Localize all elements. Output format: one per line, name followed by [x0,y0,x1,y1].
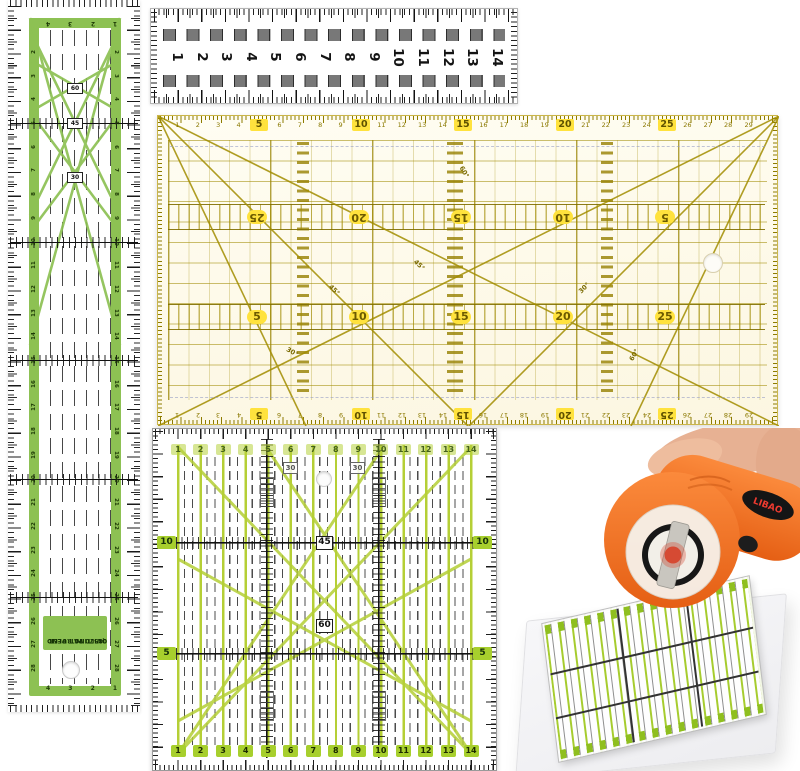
strip-length-number: 22 [30,520,38,532]
strip-width-number-top: 3 [63,19,77,27]
bigruler-bottom-number: 24 [639,410,655,419]
bigruler-bottom-number: 19 [537,410,553,419]
bigruler-top-number: 23 [618,121,634,130]
bigruler-top-number: 12 [394,121,410,130]
square-quilting-ruler: 30 30 45 60 10 5 10 5 112233445566778899… [152,428,497,771]
topruler-number: 2 [190,48,214,66]
bigruler-upper-band-number: 20 [349,210,369,224]
topruler-number: 5 [263,48,287,66]
topruler-number: 9 [362,48,386,66]
bigruler-bottom-number: 1 [169,410,185,419]
strip-length-number: 12 [30,283,38,295]
strip-length-number: 12 [112,283,120,295]
bigruler-top-number: 26 [679,121,695,130]
strip-length-number: 16 [112,378,120,390]
bigruler-bottom-number: 14 [435,410,451,419]
bigruler-bottom-number: 13 [414,410,430,419]
topruler-number: 8 [337,48,361,66]
square-top-number: 5 [261,444,276,455]
strip-length-number: 20 [112,473,120,485]
angle-60-marker: 60 [67,83,83,94]
bigruler-bottom-number: 29 [741,410,757,419]
strip-length-number: 6 [30,141,38,153]
bigruler-top-number: 18 [516,121,532,130]
strip-width-number-bottom: 1 [108,685,122,693]
strip-length-number: 11 [30,259,38,271]
strip-length-number: 3 [30,70,38,82]
strip-width-number-bottom: 2 [86,685,100,693]
bigruler-top-number: 6 [271,121,287,130]
strip-length-number: 23 [112,544,120,556]
square-top-number: 13 [441,444,456,455]
large-quilting-grid-ruler: 45° 30° 30° 60° 60° 45° 1122334455667788… [157,115,778,425]
bigruler-lower-band-number: 20 [553,310,573,324]
rotary-cutter-with-hand: LIBAO [540,428,800,633]
angle-30-marker: 30 [67,172,83,183]
strip-length-number: 15 [112,354,120,366]
bigruler-upper-band-number: 5 [655,210,675,224]
bigruler-top-number: 20 [556,119,574,131]
bigruler-hanging-hole [703,253,723,273]
bigruler-bottom-number: 23 [618,410,634,419]
strip-width-number-top: 1 [108,19,122,27]
bigruler-top-number: 15 [454,119,472,131]
strip-length-number: 2 [112,46,120,58]
strip-ruler-label-line2: 08570 PAT. PEND [47,635,107,645]
square-hanging-hole [316,471,332,487]
bigruler-top-number: 11 [373,121,389,130]
topruler-number: 3 [214,48,238,66]
square-top-number: 11 [396,444,411,455]
strip-length-number: 14 [112,330,120,342]
square-top-number: 6 [283,444,298,455]
strip-width-number-top: 2 [86,19,100,27]
strip-length-number: 8 [30,188,38,200]
strip-width-number-bottom: 3 [63,685,77,693]
topruler-number: 14 [485,48,509,66]
bigruler-bottom-number: 11 [373,410,389,419]
square-top-number: 9 [351,444,366,455]
angle-45-marker: 45 [67,118,83,129]
bigruler-upper-band-number: 10 [553,210,573,224]
square-angle-60-label: 60 [318,620,331,630]
bigruler-top-number: 10 [352,119,370,131]
bigruler-bottom-number: 18 [516,410,532,419]
strip-length-number: 25 [30,591,38,603]
bigruler-top-number: 25 [658,119,676,131]
strip-length-number: 19 [30,449,38,461]
strip-length-number: 28 [112,662,120,674]
bigruler-top-number: 21 [577,121,593,130]
strip-length-number: 18 [30,425,38,437]
bigruler-top-number: 28 [720,121,736,130]
bigruler-top-number: 27 [700,121,716,130]
bigruler-numbers: 1122334455667788991010111112121313141415… [158,116,777,424]
strip-length-number: 21 [30,496,38,508]
bigruler-bottom-number: 12 [394,410,410,419]
square-bottom-number: 11 [396,745,411,757]
strip-length-number: 23 [30,544,38,556]
bigruler-top-number: 24 [639,121,655,130]
square-bottom-number: 8 [328,745,343,757]
strip-length-number: 15 [30,354,38,366]
strip-width-number-bottom: 4 [41,685,55,693]
bigruler-bottom-number: 28 [720,410,736,419]
square-top-number: 2 [193,444,208,455]
bigruler-top-number: 22 [598,121,614,130]
square-top-number: 8 [328,444,343,455]
strip-length-number: 21 [112,496,120,508]
strip-width-number-top: 4 [41,19,55,27]
bigruler-top-number: 29 [741,121,757,130]
bigruler-bottom-number: 4 [231,410,247,419]
bigruler-lower-band-number: 25 [655,310,675,324]
strip-length-number: 19 [112,449,120,461]
bigruler-bottom-number: 27 [700,410,716,419]
square-bottom-number: 2 [193,745,208,757]
square-bottom-number: 7 [306,745,321,757]
square-bottom-number: 12 [418,745,433,757]
topruler-number: 1 [165,48,189,66]
topruler-number: 7 [313,48,337,66]
square-top-number: 1 [171,444,186,455]
bigruler-bottom-number: 8 [312,410,328,419]
strip-length-number: 8 [112,188,120,200]
strip-length-number: 4 [30,93,38,105]
strip-length-number: 18 [112,425,120,437]
square-bottom-number: 9 [351,745,366,757]
bigruler-top-number: 2 [190,121,206,130]
square-bottom-number: 14 [464,745,479,757]
square-top-number: 10 [373,444,388,455]
bigruler-lower-band-number: 15 [451,310,471,324]
bigruler-bottom-number: 20 [556,408,574,420]
bigruler-bottom-number: 15 [454,408,472,420]
bigruler-top-number: 5 [250,119,268,131]
square-top-number: 4 [238,444,253,455]
topruler-number: 10 [386,48,410,66]
bigruler-bottom-number: 9 [333,410,349,419]
square-bottom-number: 5 [261,745,276,757]
strip-length-number: 4 [112,93,120,105]
bigruler-top-number: 8 [312,121,328,130]
bigruler-bottom-number: 2 [190,410,206,419]
clear-straight-ruler: 1234567891011121314 [150,8,518,104]
strip-numbers: 2233445566778899101011111212131314141515… [8,0,140,712]
strip-length-number: 13 [112,307,120,319]
bigruler-bottom-number: 6 [271,410,287,419]
bigruler-bottom-number: 25 [658,408,676,420]
strip-length-number: 7 [112,164,120,176]
topruler-numbers: 1234567891011121314 [151,9,517,103]
square-top-number: 3 [216,444,231,455]
strip-length-number: 20 [30,473,38,485]
rotary-blade [626,505,720,599]
strip-length-number: 26 [30,615,38,627]
bigruler-top-number: 19 [537,121,553,130]
square-angle-60-box: 60 [316,619,333,633]
strip-hanging-hole [62,661,80,679]
bigruler-top-number: 16 [475,121,491,130]
strip-length-number: 3 [112,70,120,82]
strip-length-number: 6 [112,141,120,153]
square-bottom-number: 1 [171,745,186,757]
bigruler-bottom-number: 22 [598,410,614,419]
strip-ruler-brand-label: QUILTING RULER 08570 PAT. PEND [43,616,107,650]
strip-length-number: 11 [112,259,120,271]
strip-length-number: 26 [112,615,120,627]
strip-length-number: 22 [112,520,120,532]
bigruler-bottom-number: 7 [292,410,308,419]
bigruler-lower-band-number: 5 [247,310,267,324]
bigruler-lower-band-number: 10 [349,310,369,324]
bigruler-bottom-number: 3 [210,410,226,419]
topruler-number: 6 [288,48,312,66]
strip-length-number: 17 [30,401,38,413]
strip-length-number: 10 [112,236,120,248]
bigruler-top-number: 3 [210,121,226,130]
bigruler-bottom-number: 17 [496,410,512,419]
strip-length-number: 10 [30,236,38,248]
topruler-number: 11 [411,48,435,66]
bigruler-top-number: 4 [231,121,247,130]
square-bottom-number: 3 [216,745,231,757]
bigruler-bottom-number: 21 [577,410,593,419]
bigruler-top-number: 17 [496,121,512,130]
square-top-number: 14 [464,444,479,455]
square-top-number: 7 [306,444,321,455]
bigruler-bottom-number: 5 [250,408,268,420]
bigruler-top-number: 9 [333,121,349,130]
square-angle-45-box: 45 [316,536,333,550]
bigruler-top-number: 14 [435,121,451,130]
bigruler-bottom-number: 26 [679,410,695,419]
strip-length-number: 17 [112,401,120,413]
strip-length-number: 2 [30,46,38,58]
angle-30-label: 30 [71,174,79,181]
angle-45-label: 45 [71,120,79,127]
strip-quilting-ruler: 2233445566778899101011111212131314141515… [8,0,140,712]
strip-length-number: 9 [112,212,120,224]
strip-length-number: 9 [30,212,38,224]
strip-length-number: 5 [112,117,120,129]
strip-length-number: 13 [30,307,38,319]
topruler-number: 12 [436,48,460,66]
bigruler-bottom-number: 16 [475,410,491,419]
strip-length-number: 14 [30,330,38,342]
square-bottom-number: 10 [373,745,388,757]
topruler-number: 4 [239,48,263,66]
strip-length-number: 28 [30,662,38,674]
strip-length-number: 24 [112,567,120,579]
square-top-number: 12 [418,444,433,455]
angle-60-label: 60 [71,85,79,92]
strip-length-number: 5 [30,117,38,129]
product-photo-quilting-ruler-set: 2233445566778899101011111212131314141515… [0,0,800,771]
strip-length-number: 7 [30,164,38,176]
square-bottom-number: 4 [238,745,253,757]
square-angle-45-label: 45 [318,537,331,547]
strip-length-number: 16 [30,378,38,390]
strip-length-number: 27 [112,638,120,650]
strip-length-number: 24 [30,567,38,579]
strip-length-number: 25 [112,591,120,603]
strip-length-number: 27 [30,638,38,650]
topruler-number: 13 [460,48,484,66]
bigruler-top-number: 1 [169,121,185,130]
square-bottom-number: 6 [283,745,298,757]
bigruler-upper-band-number: 15 [451,210,471,224]
bigruler-bottom-number: 10 [352,408,370,420]
square-bottom-number: 13 [441,745,456,757]
bigruler-top-number: 7 [292,121,308,130]
bigruler-upper-band-number: 25 [247,210,267,224]
bigruler-top-number: 13 [414,121,430,130]
